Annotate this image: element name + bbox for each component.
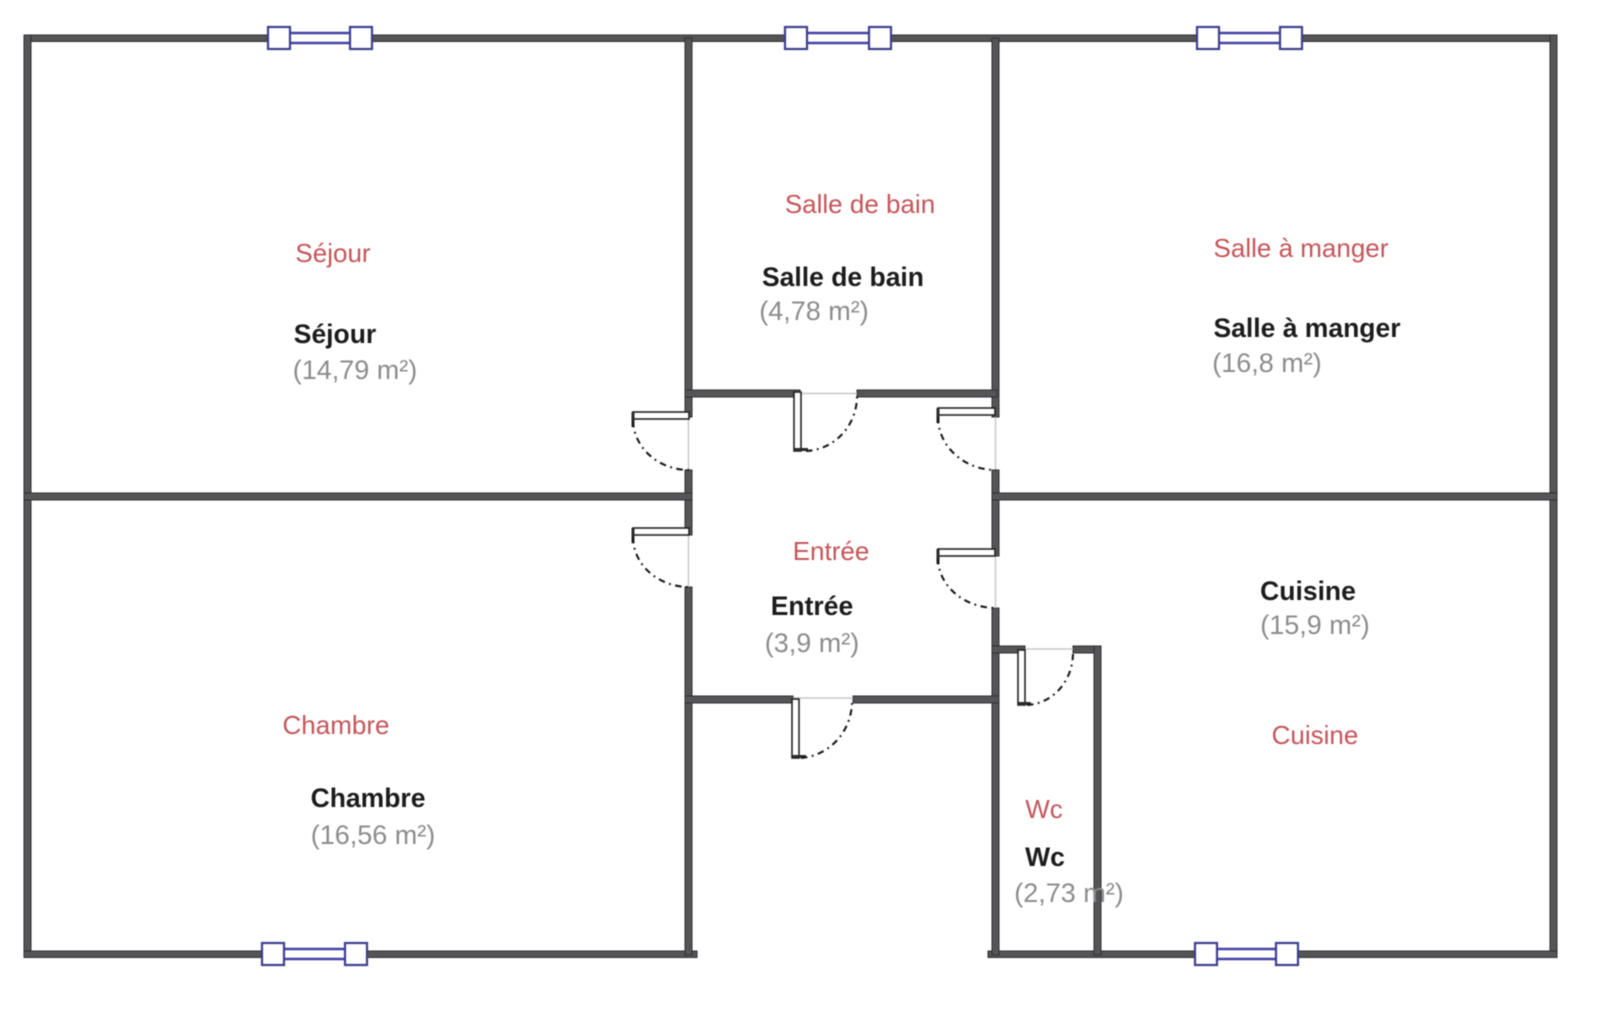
svg-text:Entrée: Entrée bbox=[771, 591, 853, 621]
svg-text:Salle à manger: Salle à manger bbox=[1214, 233, 1389, 263]
svg-text:(16,8 m²): (16,8 m²) bbox=[1212, 348, 1322, 378]
svg-text:Cuisine: Cuisine bbox=[1272, 720, 1359, 750]
svg-text:Cuisine: Cuisine bbox=[1260, 576, 1356, 606]
svg-text:Salle de bain: Salle de bain bbox=[762, 262, 924, 292]
svg-text:(15,9 m²): (15,9 m²) bbox=[1260, 610, 1370, 640]
svg-text:(14,79 m²): (14,79 m²) bbox=[293, 355, 418, 385]
svg-text:(3,9 m²): (3,9 m²) bbox=[765, 628, 860, 658]
svg-text:Wc: Wc bbox=[1025, 794, 1063, 824]
svg-text:Salle de bain: Salle de bain bbox=[785, 189, 935, 219]
svg-text:Séjour: Séjour bbox=[295, 238, 370, 268]
svg-text:Wc: Wc bbox=[1025, 842, 1065, 872]
svg-text:Chambre: Chambre bbox=[283, 710, 390, 740]
svg-text:Chambre: Chambre bbox=[311, 783, 426, 813]
svg-text:Séjour: Séjour bbox=[294, 319, 376, 349]
svg-text:(2,73 m²): (2,73 m²) bbox=[1014, 878, 1124, 908]
svg-text:(16,56 m²): (16,56 m²) bbox=[311, 820, 436, 850]
svg-text:Salle à manger: Salle à manger bbox=[1213, 313, 1400, 343]
svg-text:Entrée: Entrée bbox=[793, 536, 870, 566]
svg-text:(4,78 m²): (4,78 m²) bbox=[759, 296, 869, 326]
